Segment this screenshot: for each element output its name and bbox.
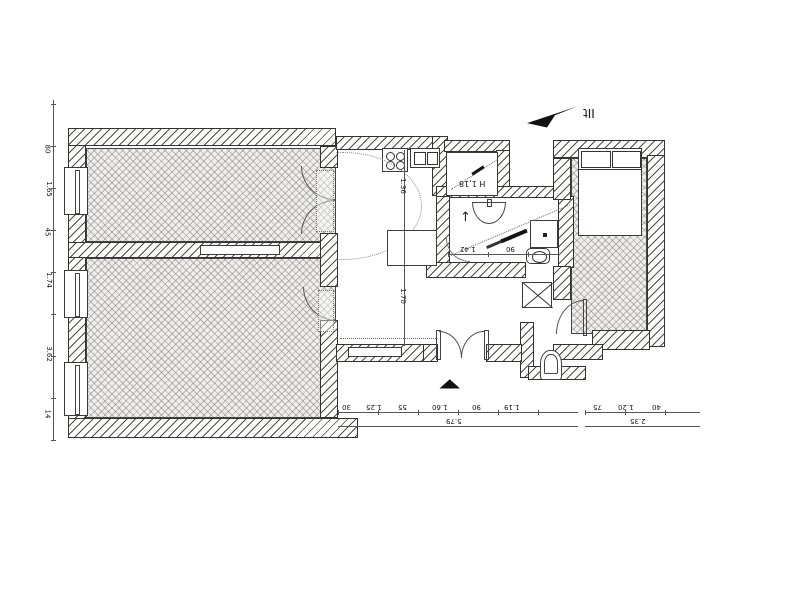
dim-ticks (51, 100, 56, 441)
bed (578, 148, 642, 236)
north-arrow-icon (527, 106, 577, 128)
dim-label: 80 (43, 145, 51, 154)
dim-label: 55 (398, 403, 407, 411)
hall-height-label: H 1,18 (459, 179, 485, 188)
wall-bedroom-left-lower (553, 266, 571, 300)
window-glass-line (75, 365, 80, 415)
hall-annotation-mark (471, 165, 484, 175)
dim-label: 1.65 (45, 181, 53, 197)
dim-label: 40 (652, 403, 661, 411)
dim-ticks (585, 410, 700, 415)
dim-label: 75 (593, 403, 602, 411)
shower-drain (543, 233, 547, 237)
bath-arrow-up-icon: ↑ (460, 210, 471, 225)
window (64, 362, 88, 416)
door-leaf (318, 290, 334, 332)
dim-label: 90 (472, 403, 481, 411)
room-left-top-floor (86, 148, 336, 242)
bath-annotation-mark (486, 240, 502, 249)
washbasin-tap (487, 199, 492, 207)
bath-dim-label: 90 (506, 245, 515, 253)
entry-dashed-line (340, 338, 436, 339)
dim-label: 1.25 (366, 403, 382, 411)
dim-label: 3.62 (45, 346, 53, 362)
shaft (522, 282, 552, 308)
wall-entry-right (486, 344, 522, 362)
wall-niche (200, 245, 280, 255)
bedroom-door-arc (556, 300, 584, 334)
window (64, 270, 88, 318)
compass-marks: IIt (583, 106, 595, 120)
toilet-wc (540, 350, 562, 380)
dim-label: 30 (342, 403, 351, 411)
window-glass-line (75, 170, 80, 214)
radiator-niche (348, 347, 402, 357)
wall-bedroom-right (647, 155, 665, 347)
window-glass-line (75, 273, 80, 317)
dim-label: 1.60 (432, 403, 448, 411)
floor-plan: H 1,18 ↑ 1.42 90 ▲ II (0, 0, 801, 601)
dim-label-total: 2.35 (630, 417, 646, 425)
entrance-arrow-icon: ▲ (439, 376, 460, 390)
window (64, 167, 88, 215)
bed-pillow (612, 151, 641, 168)
wall-bath-bottom (426, 262, 526, 278)
dim-label: 1.20 (618, 403, 634, 411)
dim-label-total: 5.79 (446, 417, 462, 425)
bed-pillow (581, 151, 611, 168)
dim-line-right-total (585, 426, 700, 427)
shower (530, 220, 558, 248)
dim-line-bottom-total (338, 426, 578, 427)
toilet-seat (544, 354, 558, 374)
dim-label: 1.36 (399, 178, 407, 194)
dim-label: 14 (43, 410, 51, 419)
washbasin (472, 202, 506, 224)
living-table (387, 230, 437, 266)
sink-basin (427, 152, 438, 165)
room-left-bottom-floor (86, 258, 336, 418)
entry-door-leaf (484, 330, 489, 360)
bed-blanket-line (579, 169, 641, 170)
dim-label: 45 (43, 228, 51, 237)
wall-segment (320, 320, 338, 418)
dim-label: 1.19 (504, 403, 520, 411)
dim-label: 1.70 (399, 288, 407, 304)
wall-bottom-left (68, 418, 358, 438)
wall-bedroom-left-upper (553, 158, 571, 200)
entry-door-arc (439, 331, 462, 358)
entry-door-arc (461, 331, 484, 358)
hall-closet: H 1,18 (446, 152, 498, 196)
dim-label: 1.74 (45, 272, 53, 288)
wall-top-left (68, 128, 336, 146)
door-leaf (316, 170, 334, 232)
